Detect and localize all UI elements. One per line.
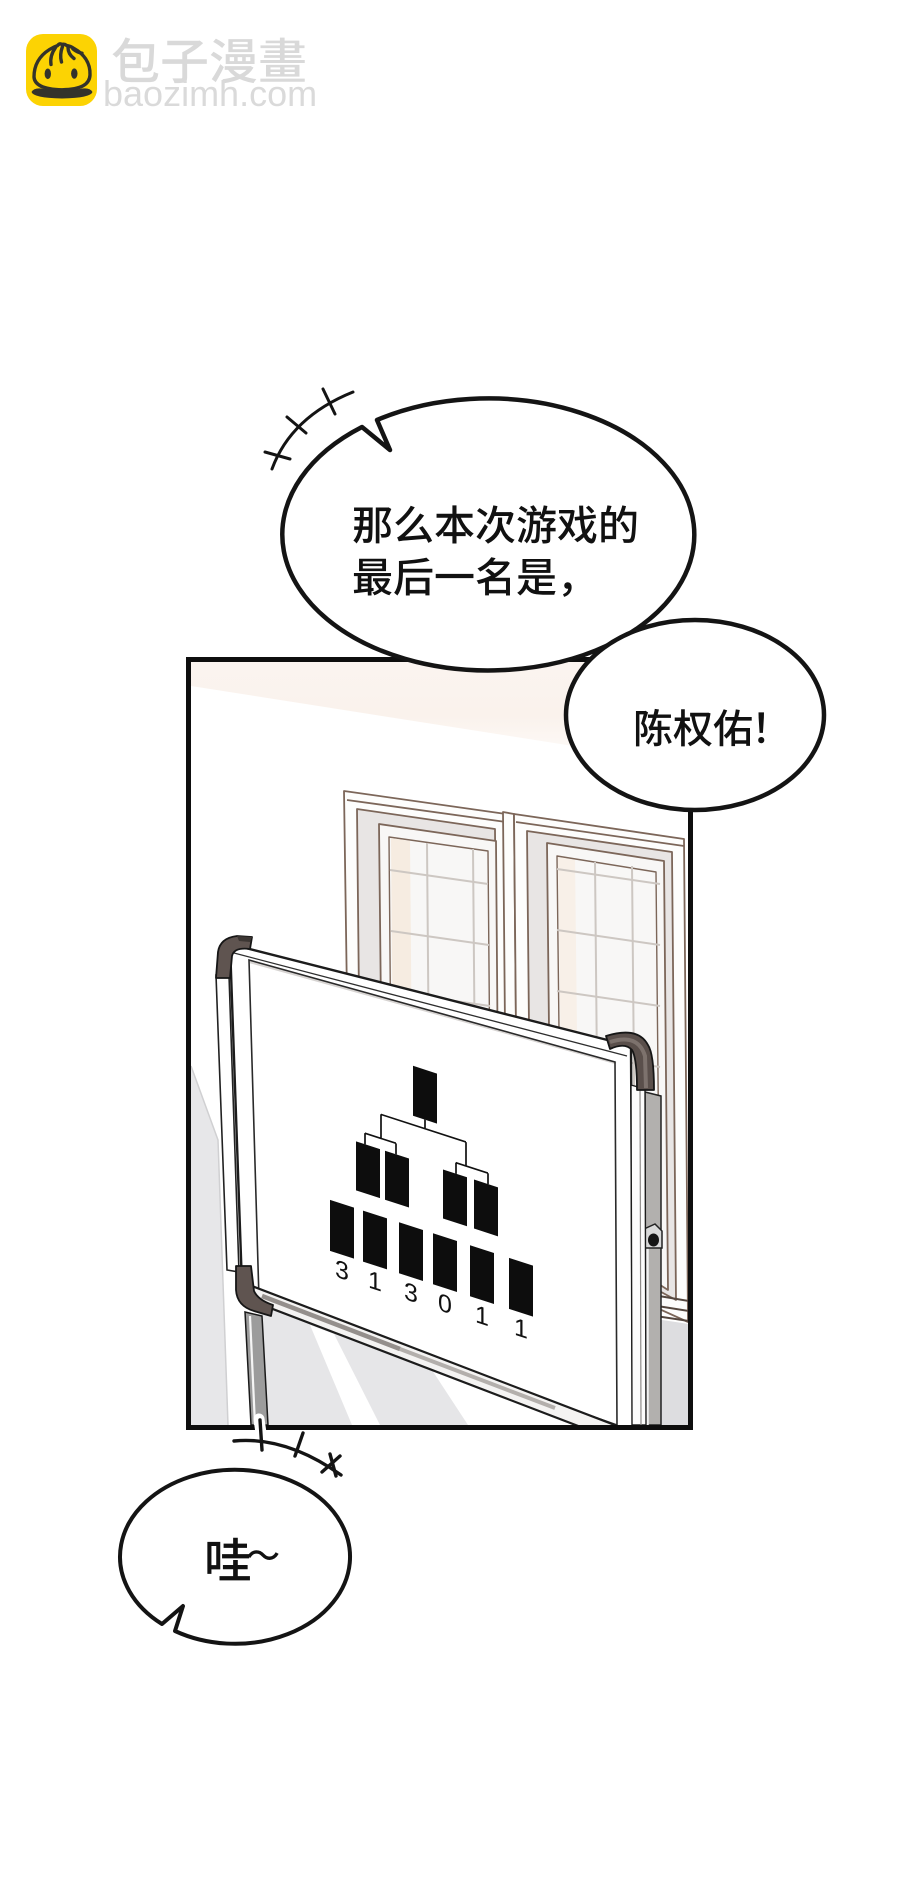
- svg-text:1: 1: [475, 1300, 489, 1332]
- svg-text:1: 1: [514, 1313, 528, 1345]
- svg-text:baozimh.com: baozimh.com: [103, 73, 317, 114]
- svg-text:3: 3: [404, 1277, 418, 1309]
- svg-text:0: 0: [438, 1288, 452, 1320]
- svg-text:3: 3: [335, 1255, 349, 1287]
- svg-text:1: 1: [368, 1266, 382, 1298]
